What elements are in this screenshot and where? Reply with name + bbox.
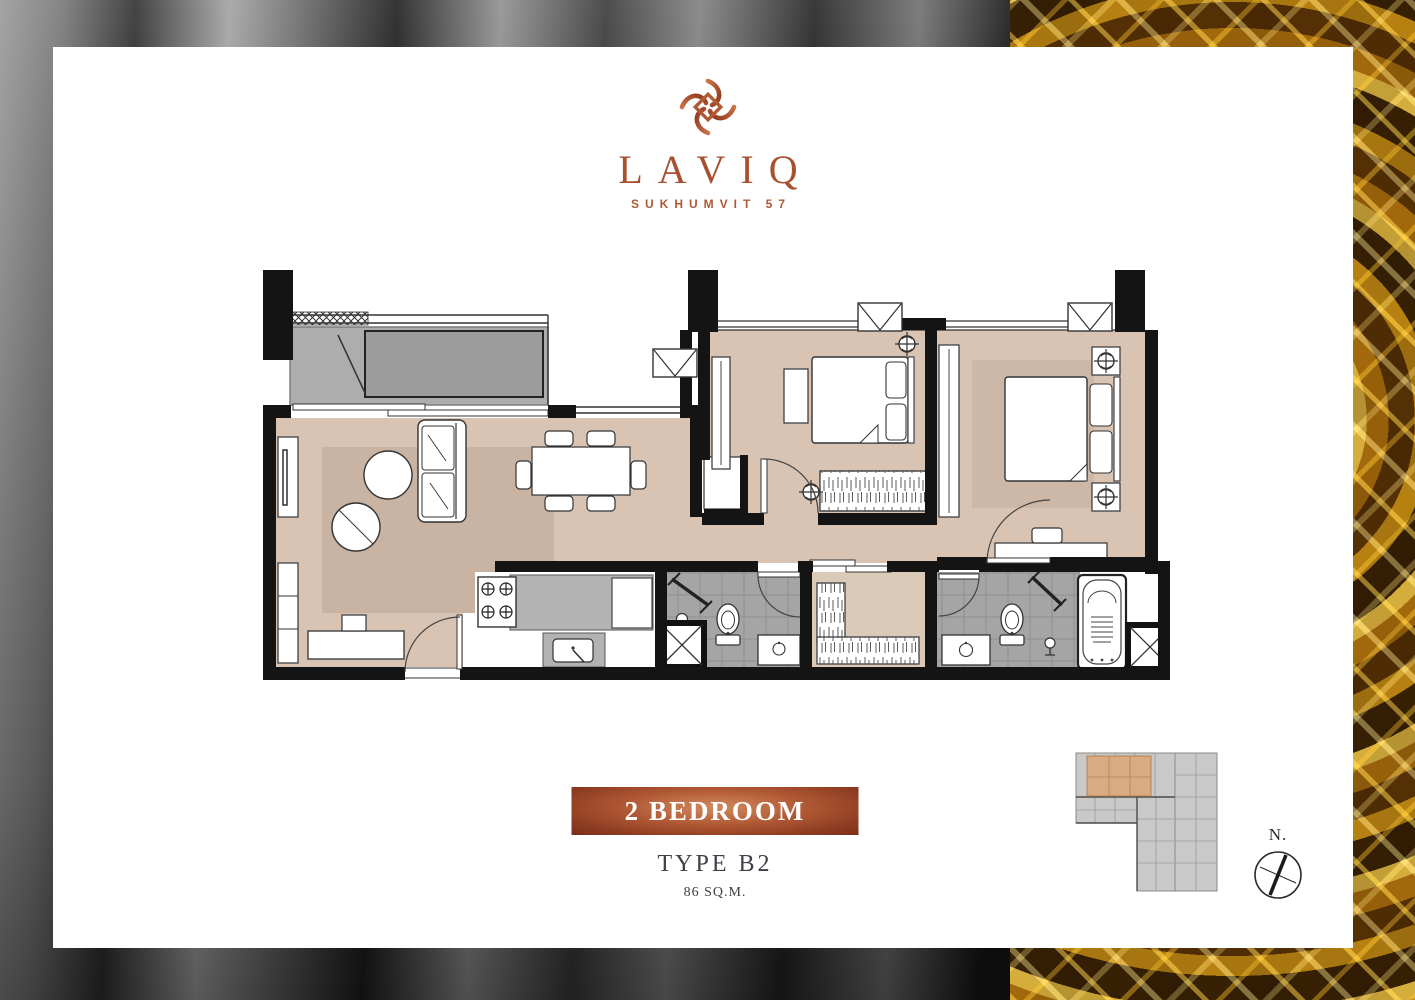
banner-2-bedroom: 2 BEDROOM: [572, 787, 859, 835]
unit-area-label: 86 SQ.M.: [684, 885, 747, 901]
brochure-card: LAVIQ SUKHUMVIT 57: [53, 47, 1353, 948]
banner-label: 2 BEDROOM: [625, 796, 806, 827]
floor-plan: [260, 265, 1170, 685]
laviq-knot-emblem-icon: [677, 73, 739, 141]
key-plan: [1075, 747, 1225, 897]
brand-logo: LAVIQ SUKHUMVIT 57: [548, 73, 868, 211]
compass: N.: [1248, 825, 1308, 903]
brand-subtitle: SUKHUMVIT 57: [548, 197, 868, 211]
brand-name: LAVIQ: [548, 149, 868, 191]
compass-north-label: N.: [1248, 825, 1308, 845]
compass-icon: [1250, 847, 1306, 903]
unit-type-label: TYPE B2: [657, 851, 772, 878]
